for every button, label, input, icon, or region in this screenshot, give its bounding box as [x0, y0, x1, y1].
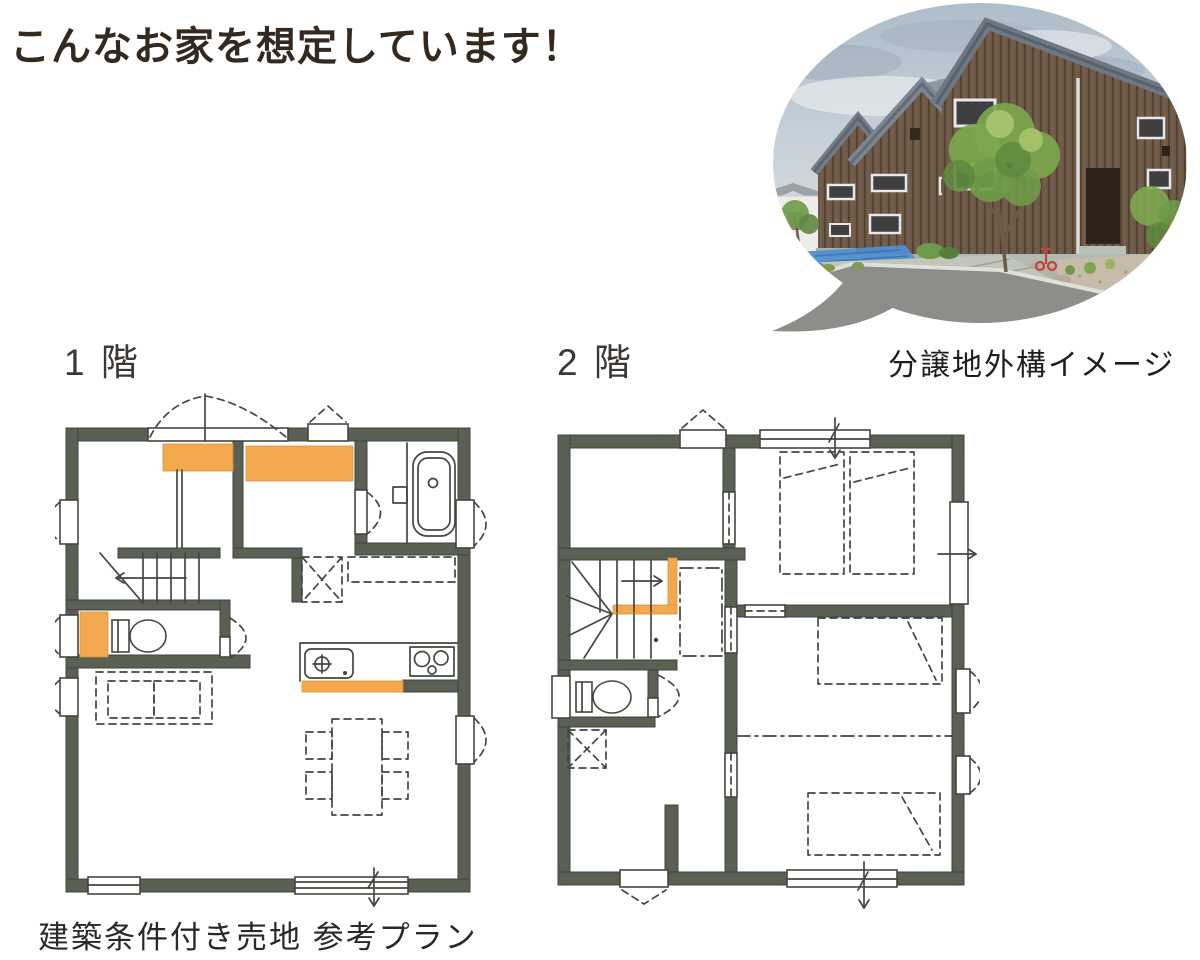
exterior-photo-bubble — [755, 0, 1200, 340]
plan-note: 建築条件付き売地 参考プラン — [38, 912, 478, 957]
floor-plan-2f — [545, 400, 980, 915]
fp1-bathtub-icon — [393, 452, 455, 536]
fp1-dining-table — [306, 719, 408, 815]
floor-label-1f: 1 階 — [64, 332, 141, 386]
photo-road — [755, 262, 1200, 340]
fp1-stairs — [100, 553, 186, 603]
fp1-vent — [308, 406, 348, 441]
floor-label-2f: 2 階 — [557, 332, 634, 386]
floor-plan-1f — [55, 385, 500, 910]
fp2-beds — [780, 452, 942, 855]
fp2-toilet-icon — [576, 675, 679, 717]
fp1-entrance-door — [148, 394, 288, 441]
stove-icon — [410, 647, 454, 676]
fp2-walls — [558, 435, 964, 885]
fp2-windows — [552, 410, 980, 908]
fp1-kitchen — [300, 643, 457, 681]
fp2-stairs — [566, 558, 677, 658]
flyer-canvas: こんなお家を想定しています！ — [0, 0, 1200, 960]
fp1-windows — [55, 500, 486, 906]
fp1-fridge-space — [302, 557, 455, 602]
kitchen-sink-icon — [305, 649, 353, 678]
fp2-storage-space — [568, 730, 606, 768]
fp1-sofa — [96, 672, 212, 724]
photo-caption: 分譲地外構イメージ — [888, 340, 1175, 384]
page-title: こんなお家を想定しています！ — [10, 14, 583, 72]
fp2-void — [680, 568, 722, 656]
